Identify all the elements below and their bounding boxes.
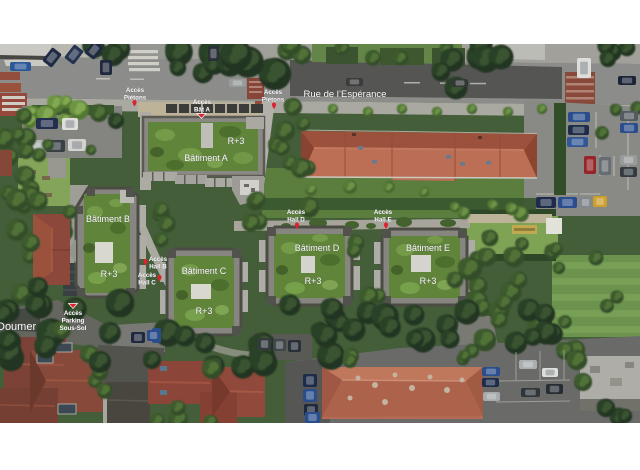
- svg-text:Accès: Accès: [287, 209, 306, 216]
- svg-text:Accès: Accès: [138, 272, 157, 279]
- svg-text:Accès: Accès: [264, 89, 283, 96]
- svg-text:Accès: Accès: [193, 99, 212, 106]
- svg-text:Parking: Parking: [62, 318, 85, 325]
- svg-text:Accès: Accès: [374, 209, 393, 216]
- svg-text:R+3: R+3: [228, 136, 245, 146]
- svg-text:R+3: R+3: [420, 276, 437, 286]
- svg-text:Bâtiment B: Bâtiment B: [86, 214, 130, 224]
- svg-text:Doumer: Doumer: [0, 321, 36, 333]
- svg-text:Bâtiment D: Bâtiment D: [295, 243, 340, 253]
- svg-text:Accès: Accès: [126, 87, 145, 94]
- svg-text:R+3: R+3: [101, 269, 118, 279]
- svg-text:Piétons: Piétons: [262, 97, 285, 104]
- svg-text:Accès: Accès: [149, 256, 168, 263]
- svg-text:Sous-Sol: Sous-Sol: [60, 325, 87, 332]
- svg-text:Accès: Accès: [64, 310, 83, 317]
- svg-text:R+3: R+3: [305, 276, 322, 286]
- svg-text:Bâtiment A: Bâtiment A: [184, 153, 228, 163]
- svg-text:R+3: R+3: [196, 306, 213, 316]
- svg-text:Hall D: Hall D: [287, 217, 305, 224]
- svg-text:Hall C: Hall C: [138, 280, 156, 287]
- svg-text:Rue de l’Espérance: Rue de l’Espérance: [304, 89, 387, 100]
- svg-text:Bât A: Bât A: [194, 107, 210, 114]
- svg-text:Hall B: Hall B: [149, 264, 167, 271]
- svg-text:Hall E: Hall E: [374, 217, 391, 224]
- svg-text:Bâtiment E: Bâtiment E: [406, 243, 450, 253]
- svg-text:Bâtiment C: Bâtiment C: [182, 266, 227, 276]
